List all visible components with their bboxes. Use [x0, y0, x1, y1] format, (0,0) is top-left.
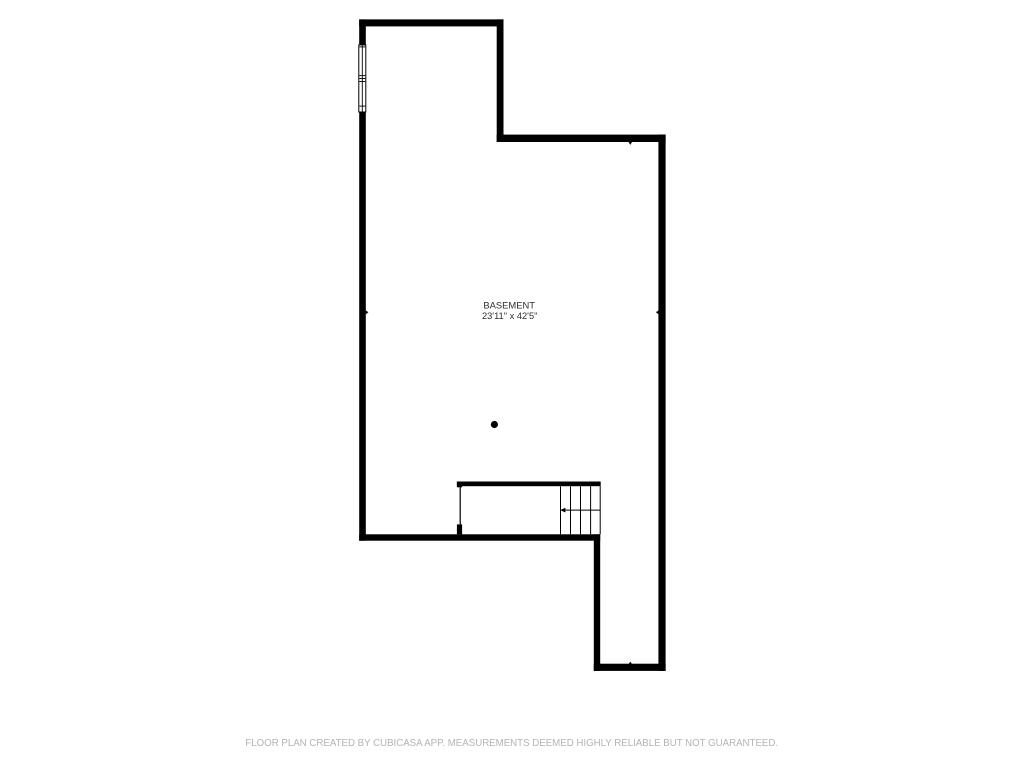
svg-text:BASEMENT: BASEMENT: [483, 299, 535, 310]
svg-text:FLOOR PLAN CREATED BY CUBICASA: FLOOR PLAN CREATED BY CUBICASA APP. MEAS…: [245, 738, 778, 749]
svg-text:23'11" x 42'5": 23'11" x 42'5": [482, 311, 537, 321]
